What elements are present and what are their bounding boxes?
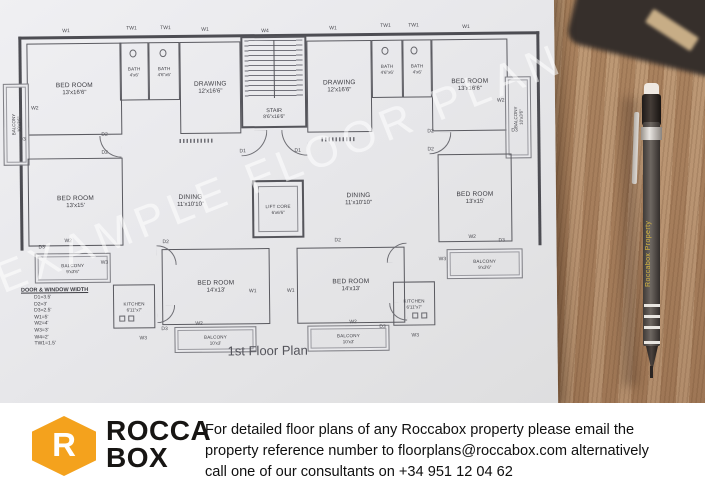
kitchen-sink-icon	[119, 316, 125, 322]
room-dims: 13'x16'6"	[62, 90, 86, 97]
room-balcony-bottom-right: BALCONY 10'x3'	[307, 325, 389, 352]
room-dining-left: DINING 11'x10'10"	[148, 173, 234, 229]
room-balcony-top-left: BALCONY 10'x3'6"	[3, 84, 30, 166]
door-arc	[156, 245, 176, 265]
room-dims: 10'x3'6"	[518, 107, 524, 129]
room-label: BALCONY	[11, 114, 17, 136]
window-marker: W4	[261, 28, 269, 34]
room-dims: 13'x15'	[66, 203, 85, 210]
room-dims: 9'x3'6"	[66, 269, 79, 274]
pencil-ring	[644, 341, 660, 344]
door-marker: D3	[379, 324, 385, 330]
room-label: DINING	[178, 194, 202, 201]
room-label: BALCONY	[61, 262, 84, 267]
room-bedroom-bottom-left: BED ROOM 14'x13'	[162, 248, 271, 325]
room-bedroom-mid-left: BED ROOM 13'x15'	[28, 158, 124, 247]
room-label: LIFT CORE	[265, 203, 290, 208]
room-dims: 8'6"x16'6"	[243, 114, 305, 121]
door-marker: D2	[101, 150, 107, 156]
door-marker: D2	[162, 239, 168, 245]
door-marker: D2	[334, 237, 340, 243]
window-marker: W2	[349, 319, 357, 325]
door-marker: D1	[294, 148, 300, 154]
room-label: BALCONY	[473, 258, 496, 263]
brand-word-2: BOX	[106, 444, 211, 471]
room-bedroom-top-left: BED ROOM 13'x16'6"	[26, 43, 122, 136]
room-dims: 13'x15'	[466, 199, 485, 206]
room-dims: 14'x13'	[342, 286, 361, 293]
door-marker: D3	[498, 238, 504, 244]
window-marker: W3	[439, 256, 447, 262]
room-label: BATH	[128, 66, 141, 71]
pencil-ring	[644, 315, 660, 318]
wall	[536, 31, 541, 245]
room-drawing-left: DRAWING 12'x16'6"	[179, 41, 241, 134]
pencil-band	[641, 127, 662, 140]
toilet-icon	[381, 47, 388, 55]
window-marker: W1	[329, 25, 337, 31]
room-balcony-mid-right: BALCONY 9'x3'6"	[447, 248, 523, 279]
stair-label: STAIR 8'6"x16'6"	[243, 108, 305, 121]
room-dims: 9'x3'6"	[478, 264, 491, 269]
window-marker: W1	[201, 27, 209, 33]
room-dims: 6'11"x7'	[407, 304, 422, 309]
room-label: BED ROOM	[451, 77, 488, 84]
room-label: BALCONY	[337, 333, 360, 338]
door-marker: D2	[427, 146, 433, 152]
room-balcony-mid-left: BALCONY 9'x3'6"	[35, 253, 111, 284]
room-dims: 4'6"x6'	[381, 69, 394, 74]
window-marker: TW1	[126, 25, 137, 31]
room-label: BALCONY	[513, 107, 519, 129]
room-dims: 4'6"x6'	[158, 72, 171, 77]
room-lift-core: LIFT CORE 6'x6'6"	[252, 180, 305, 239]
room-dims: 4'x6'	[130, 72, 139, 77]
room-label: DRAWING	[323, 79, 356, 86]
plan-title: 1st Floor Plan	[228, 343, 308, 359]
pencil-ring	[644, 326, 660, 329]
room-dims: 11'x10'10"	[345, 200, 372, 207]
contact-line-2: property reference number to floorplans@…	[205, 441, 649, 462]
room-dims: 10'x3'	[210, 340, 222, 345]
pencil-ring	[644, 304, 660, 307]
door-marker: D3	[511, 127, 517, 133]
flyer: BED ROOM 13'x16'6" BATH 4'x6' BATH 4'6"x…	[0, 0, 705, 498]
room-label: BED ROOM	[56, 82, 93, 89]
room-bedroom-mid-right: BED ROOM 13'x15'	[438, 153, 513, 242]
window-marker: W1	[462, 24, 470, 30]
pencil-tip	[646, 346, 658, 368]
stair-treads	[244, 40, 303, 99]
room-dims: 12'x16'6"	[327, 87, 351, 94]
door-window-legend: DOOR & WINDOW WIDTH D1=3.5' D2=3' D3=2.5…	[21, 286, 114, 348]
room-dims: 6'11"x7'	[127, 307, 142, 312]
window-marker: W1	[62, 28, 70, 34]
window-marker: TW1	[408, 22, 419, 28]
door-marker: D1	[239, 148, 245, 154]
footer: R ROCCA BOX For detailed floor plans of …	[0, 403, 705, 498]
window-marker: TW1	[160, 25, 171, 31]
window-hatch	[179, 139, 213, 143]
window-marker: W2	[64, 238, 72, 244]
room-dims: 10'x3'	[343, 339, 355, 344]
room-label: DRAWING	[194, 80, 227, 87]
brand-word-1: ROCCA	[106, 417, 211, 444]
door-arc	[386, 243, 406, 263]
room-bedroom-top-right: BED ROOM 13'x16'6"	[431, 39, 508, 132]
kitchen-sink-icon	[128, 315, 134, 321]
toilet-icon	[129, 49, 136, 57]
room-dims: 11'x10'10"	[177, 202, 204, 209]
kitchen-sink-icon	[421, 312, 427, 318]
floor-plan-paper: BED ROOM 13'x16'6" BATH 4'x6' BATH 4'6"x…	[0, 0, 558, 403]
contact-line-3: call one of our consultants on +34 951 1…	[205, 462, 649, 483]
floor-plan: BED ROOM 13'x16'6" BATH 4'x6' BATH 4'6"x…	[0, 0, 558, 403]
window-marker: W2	[468, 234, 476, 240]
room-dims: 10'x3'6"	[16, 114, 22, 136]
pencil-clip	[632, 112, 640, 184]
room-dims: 13'x16'6"	[458, 86, 482, 93]
contact-line-1: For detailed floor plans of any Roccabox…	[205, 420, 649, 441]
room-label: KITCHEN	[124, 301, 145, 306]
room-kitchen-left: KITCHEN 6'11"x7'	[113, 284, 155, 328]
desk-photo: BED ROOM 13'x16'6" BATH 4'x6' BATH 4'6"x…	[0, 0, 705, 403]
door-marker: D3	[19, 137, 25, 143]
room-balcony-top-right: BALCONY 10'x3'6"	[505, 76, 532, 158]
room-dining-right: DINING 11'x10'10"	[316, 172, 402, 228]
window-marker: W1	[287, 288, 295, 294]
room-label: BATH	[411, 63, 424, 68]
room-label: BED ROOM	[332, 278, 369, 285]
window-hatch	[321, 137, 355, 141]
room-label: BATH	[381, 63, 394, 68]
room-dims: 14'x13'	[207, 287, 226, 294]
toilet-icon	[410, 46, 417, 54]
room-dims: 6'x6'6"	[272, 209, 285, 214]
legend-entry: TW1=1.5'	[21, 340, 113, 348]
logo-letter: R	[52, 426, 76, 464]
window-marker: W2	[31, 105, 39, 111]
room-label: BED ROOM	[197, 279, 234, 286]
room-stair: STAIR 8'6"x16'6"	[240, 36, 307, 129]
door-marker: D2	[101, 132, 107, 138]
door-marker: D3	[38, 244, 44, 250]
brand-wordmark: ROCCA BOX	[106, 417, 211, 471]
window-marker: W1	[249, 288, 257, 294]
room-label: BALCONY	[204, 334, 227, 339]
room-label: BATH	[158, 66, 171, 71]
window-marker: W3	[139, 335, 147, 341]
balcony-label: BALCONY 10'x3'6"	[513, 107, 524, 129]
window-marker: TW1	[380, 23, 391, 29]
pencil-brand-text: Roccabox Property	[645, 192, 658, 287]
door-marker: D2	[427, 128, 433, 134]
room-dims: 4'x6'	[413, 69, 422, 74]
door-marker: D3	[161, 326, 167, 332]
pencil-lead	[650, 366, 653, 378]
room-label: BED ROOM	[456, 190, 493, 197]
room-dims: 12'x16'6"	[198, 88, 222, 95]
toilet-icon	[159, 49, 166, 57]
room-label: BED ROOM	[57, 195, 94, 202]
roccabox-logo-icon: R	[32, 416, 96, 476]
room-drawing-right: DRAWING 12'x16'6"	[306, 40, 372, 133]
window-marker: W2	[195, 321, 203, 327]
contact-text: For detailed floor plans of any Roccabox…	[205, 420, 649, 483]
balcony-label: BALCONY 10'x3'6"	[11, 114, 22, 136]
window-marker: W2	[497, 98, 505, 104]
kitchen-sink-icon	[412, 312, 418, 318]
window-marker: W3	[101, 260, 109, 266]
room-label: DINING	[346, 192, 370, 199]
window-marker: W3	[411, 332, 419, 338]
